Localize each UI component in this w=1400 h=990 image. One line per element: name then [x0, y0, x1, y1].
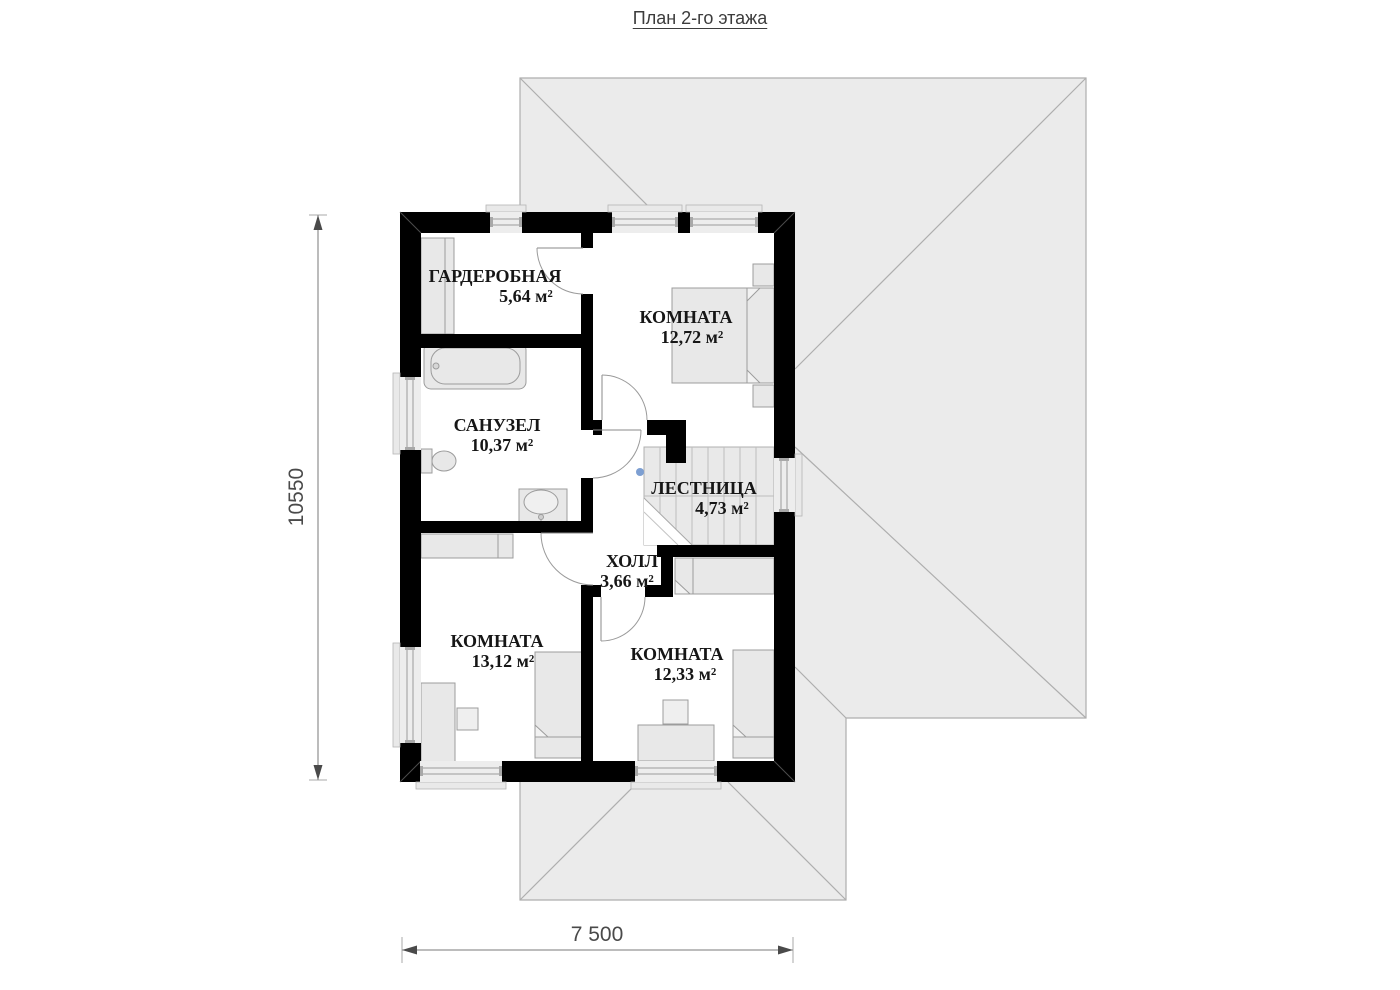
window-left-bathroom	[400, 377, 421, 450]
svg-text:КОМНАТА: КОМНАТА	[450, 631, 543, 651]
svg-text:4,73 м²: 4,73 м²	[695, 498, 749, 518]
dim-horizontal-value: 7 500	[571, 923, 624, 946]
chair-left-bedroom	[457, 708, 478, 730]
svg-text:3,66 м²: 3,66 м²	[600, 571, 654, 591]
svg-text:10,37 м²: 10,37 м²	[471, 435, 534, 455]
svg-text:КОМНАТА: КОМНАТА	[639, 307, 732, 327]
page-title: План 2-го этажа	[0, 8, 1400, 29]
svg-text:12,33 м²: 12,33 м²	[654, 664, 717, 684]
floor-plan-canvas: ГАРДЕРОБНАЯ 5,64 м² КОМНАТА 12,72 м² САН…	[0, 0, 1400, 990]
window-right-stairs	[774, 458, 795, 512]
closet-right-bedroom	[675, 558, 774, 594]
desk-right-bedroom	[638, 725, 714, 761]
page-title-text: План 2-го этажа	[633, 8, 767, 28]
svg-text:ГАРДЕРОБНАЯ: ГАРДЕРОБНАЯ	[429, 266, 562, 286]
svg-text:КОМНАТА: КОМНАТА	[630, 644, 723, 664]
window-left-bedroom	[400, 647, 421, 743]
svg-text:ЛЕСТНИЦА: ЛЕСТНИЦА	[651, 478, 756, 498]
floor-plan-page: План 2-го этажа	[0, 0, 1400, 990]
svg-text:ХОЛЛ: ХОЛЛ	[606, 551, 659, 571]
window-top-wardrobe	[490, 212, 522, 233]
svg-text:13,12 м²: 13,12 м²	[472, 651, 535, 671]
dim-arrow-right	[778, 946, 793, 955]
closet-left-bedroom	[421, 534, 513, 558]
bed-left-bedroom	[535, 652, 585, 758]
dim-arrow-up	[314, 215, 323, 230]
dim-arrow-left	[402, 946, 417, 955]
bed-right-bedroom	[733, 650, 774, 758]
nightstand	[753, 385, 774, 407]
closet-wardrobe-room	[421, 238, 454, 334]
stairs-marker-dot	[636, 468, 644, 476]
svg-text:12,72 м²: 12,72 м²	[661, 327, 724, 347]
dim-arrow-down	[314, 765, 323, 780]
wardrobe-left-bedroom	[421, 683, 455, 762]
nightstand	[753, 264, 774, 286]
room-label-hall: ХОЛЛ 3,66 м²	[600, 551, 658, 591]
window-top-bedroom-1	[612, 212, 678, 233]
chair-right-bedroom	[663, 700, 688, 724]
dimension-vertical: 10550	[285, 215, 327, 780]
toilet	[421, 449, 456, 473]
bathtub	[424, 343, 526, 389]
window-bottom-left-bedroom	[420, 761, 502, 782]
svg-text:5,64 м²: 5,64 м²	[499, 286, 553, 306]
dim-vertical-value: 10550	[285, 468, 308, 526]
window-bottom-right-bedroom	[635, 761, 717, 782]
dimension-horizontal: 7 500	[402, 923, 793, 963]
window-top-bedroom-2	[690, 212, 758, 233]
svg-text:САНУЗЕЛ: САНУЗЕЛ	[454, 415, 541, 435]
